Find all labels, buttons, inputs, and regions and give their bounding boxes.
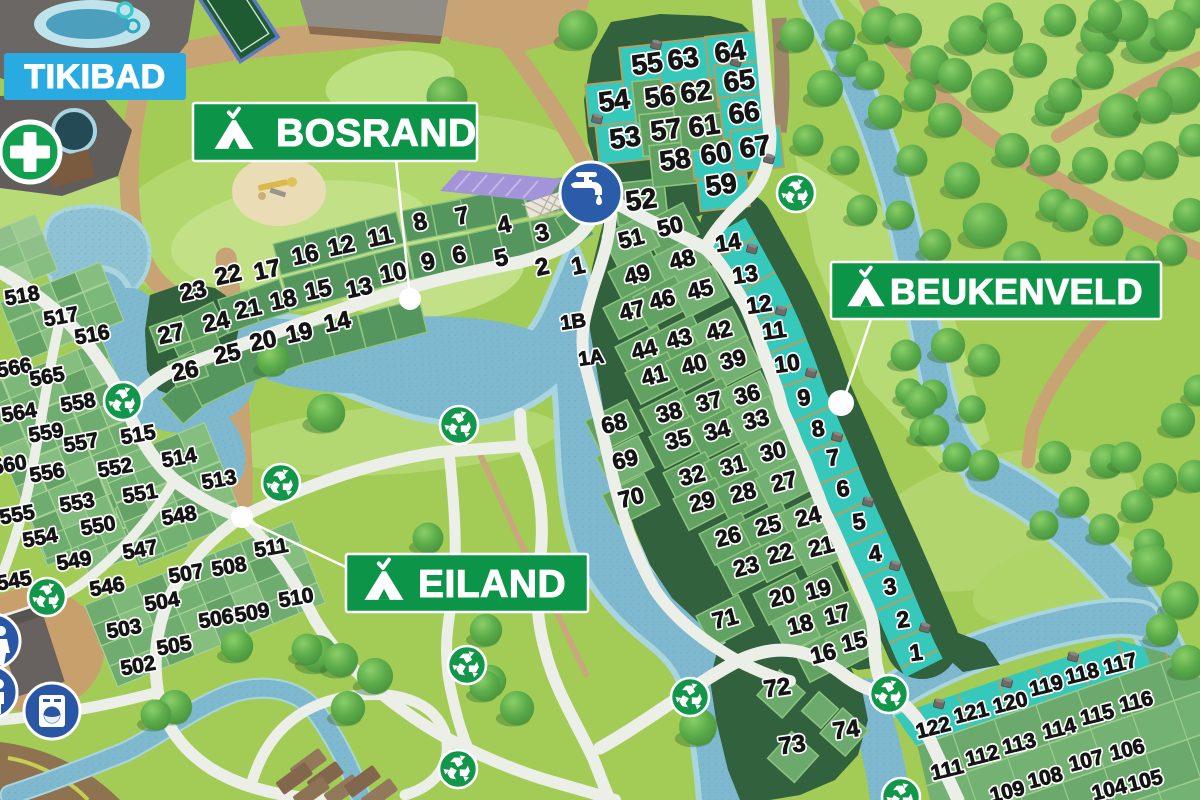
svg-text:1B: 1B [559,310,587,335]
svg-text:TIKIBAD: TIKIBAD [24,58,165,96]
svg-text:22: 22 [212,259,244,291]
svg-text:12: 12 [745,290,774,319]
svg-text:67: 67 [737,129,772,164]
svg-text:EILAND: EILAND [418,563,566,606]
svg-text:25: 25 [211,338,243,370]
svg-text:61: 61 [686,108,721,143]
svg-text:73: 73 [777,730,807,760]
svg-text:62: 62 [678,74,713,109]
svg-text:12: 12 [325,230,357,262]
svg-text:55: 55 [629,46,664,81]
svg-text:65: 65 [721,63,756,98]
svg-text:17: 17 [251,254,283,286]
svg-text:16: 16 [289,239,321,271]
svg-text:10: 10 [773,349,802,378]
svg-text:14: 14 [714,228,743,257]
svg-text:56: 56 [642,79,677,114]
svg-text:BOSRAND: BOSRAND [276,112,477,155]
svg-text:19: 19 [283,317,315,349]
svg-text:11: 11 [760,316,788,345]
svg-text:23: 23 [177,275,209,307]
svg-text:13: 13 [343,272,375,304]
svg-text:20: 20 [247,325,279,357]
svg-text:27: 27 [155,318,187,350]
svg-text:26: 26 [169,355,201,387]
svg-text:BEUKENVELD: BEUKENVELD [890,271,1143,312]
svg-text:18: 18 [267,284,299,316]
svg-text:72: 72 [762,673,792,703]
svg-text:60: 60 [698,136,733,171]
svg-text:58: 58 [657,142,692,177]
svg-text:53: 53 [607,120,642,155]
svg-text:57: 57 [648,112,683,147]
svg-text:10: 10 [377,257,409,289]
svg-text:74: 74 [831,715,862,746]
svg-text:15: 15 [302,274,334,306]
svg-text:59: 59 [703,167,738,202]
svg-text:21: 21 [232,293,264,325]
svg-text:1A: 1A [577,346,605,371]
svg-text:66: 66 [726,95,761,130]
svg-text:13: 13 [731,260,760,289]
svg-text:54: 54 [596,83,632,118]
svg-text:63: 63 [665,41,700,76]
svg-text:52: 52 [623,182,658,217]
